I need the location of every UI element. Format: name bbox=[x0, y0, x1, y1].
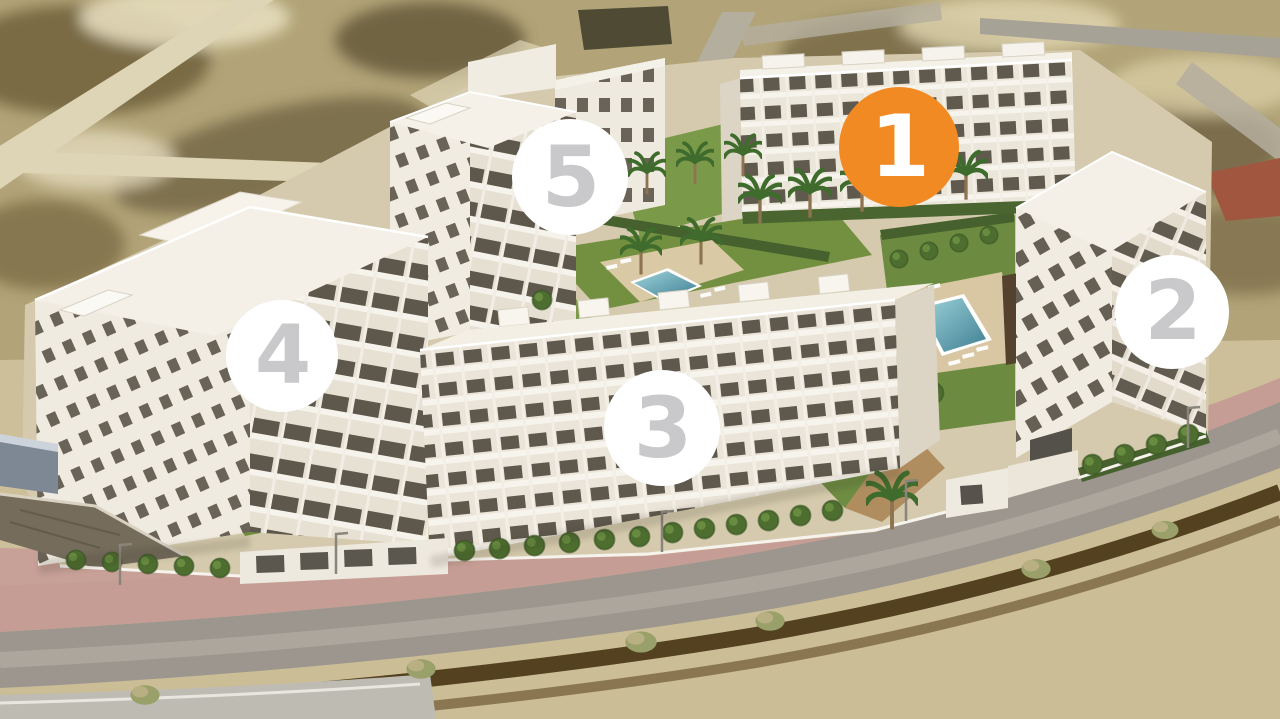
phase-marker-label: 1 bbox=[870, 104, 928, 190]
phase-marker-5[interactable]: 5 bbox=[512, 119, 628, 235]
phase-marker-label: 5 bbox=[542, 135, 598, 219]
phase-marker-label: 3 bbox=[634, 386, 690, 470]
aerial-site-plan: 1 2 3 4 5 bbox=[0, 0, 1280, 719]
site-render bbox=[0, 0, 1280, 719]
phase-marker-3[interactable]: 3 bbox=[604, 370, 720, 486]
phase-marker-2[interactable]: 2 bbox=[1115, 255, 1229, 369]
phase-marker-label: 4 bbox=[255, 316, 309, 397]
phase-marker-label: 2 bbox=[1144, 271, 1199, 353]
phase-marker-4[interactable]: 4 bbox=[226, 300, 338, 412]
phase-marker-1[interactable]: 1 bbox=[839, 87, 959, 207]
